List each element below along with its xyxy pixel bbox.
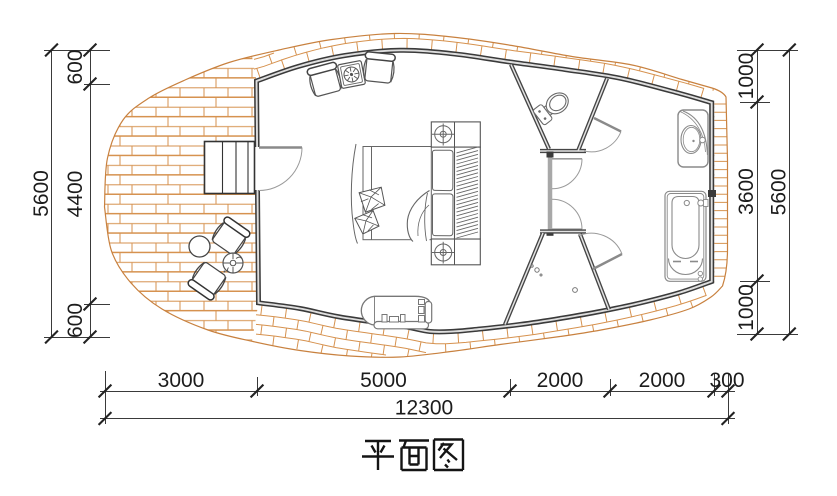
svg-text:5600: 5600 — [30, 170, 53, 217]
svg-text:1000: 1000 — [735, 284, 758, 331]
svg-text:12300: 12300 — [395, 397, 453, 420]
svg-text:600: 600 — [64, 49, 87, 84]
svg-text:2000: 2000 — [639, 369, 686, 392]
svg-text:5000: 5000 — [360, 369, 407, 392]
svg-text:300: 300 — [709, 369, 744, 392]
svg-text:3000: 3000 — [158, 369, 205, 392]
svg-text:4400: 4400 — [64, 171, 87, 218]
svg-text:3600: 3600 — [735, 168, 758, 215]
svg-text:5600: 5600 — [767, 169, 790, 216]
svg-text:2000: 2000 — [537, 369, 584, 392]
svg-text:1000: 1000 — [735, 53, 758, 100]
svg-text:600: 600 — [64, 303, 87, 338]
